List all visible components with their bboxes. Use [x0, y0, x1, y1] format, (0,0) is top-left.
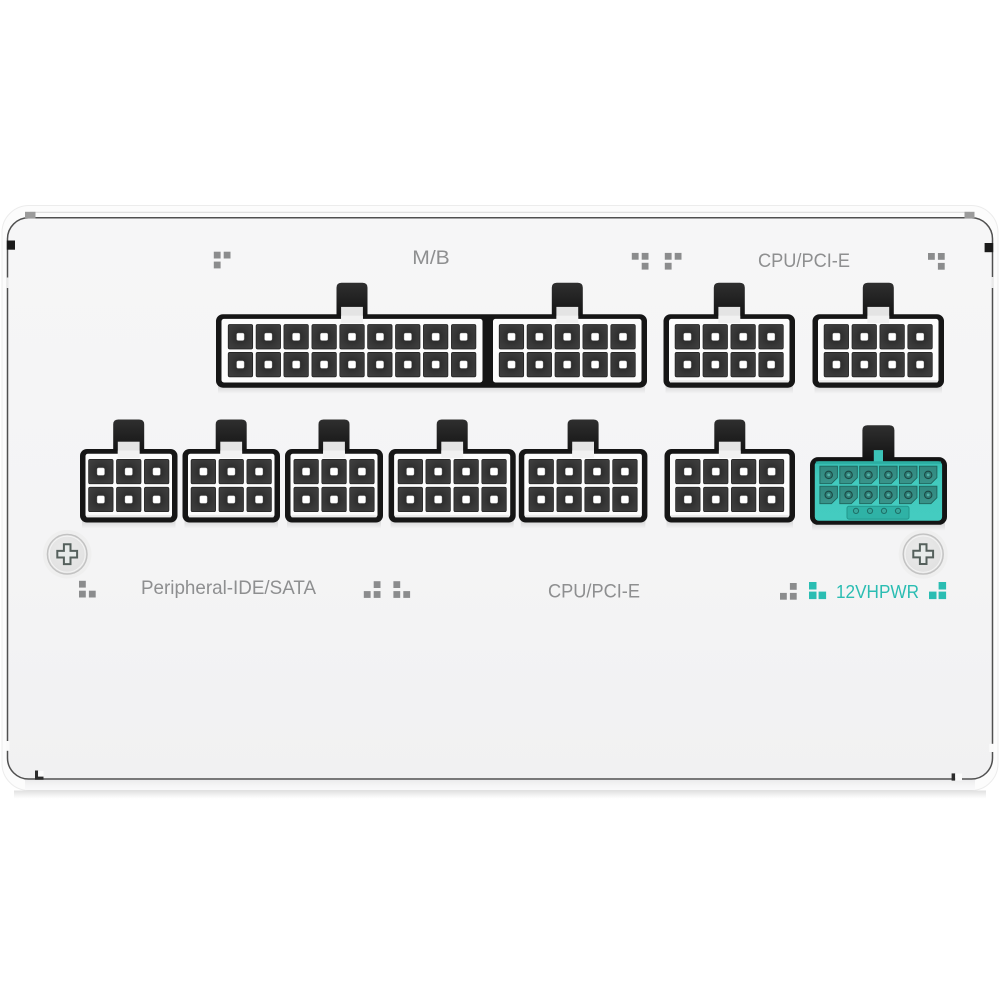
svg-text:CPU/PCI-E: CPU/PCI-E	[758, 250, 850, 272]
svg-text:12VHPWR: 12VHPWR	[836, 582, 919, 602]
svg-text:M/B: M/B	[412, 247, 450, 269]
svg-text:CPU/PCI-E: CPU/PCI-E	[548, 580, 640, 602]
svg-text:Peripheral-IDE/SATA: Peripheral-IDE/SATA	[141, 577, 316, 599]
